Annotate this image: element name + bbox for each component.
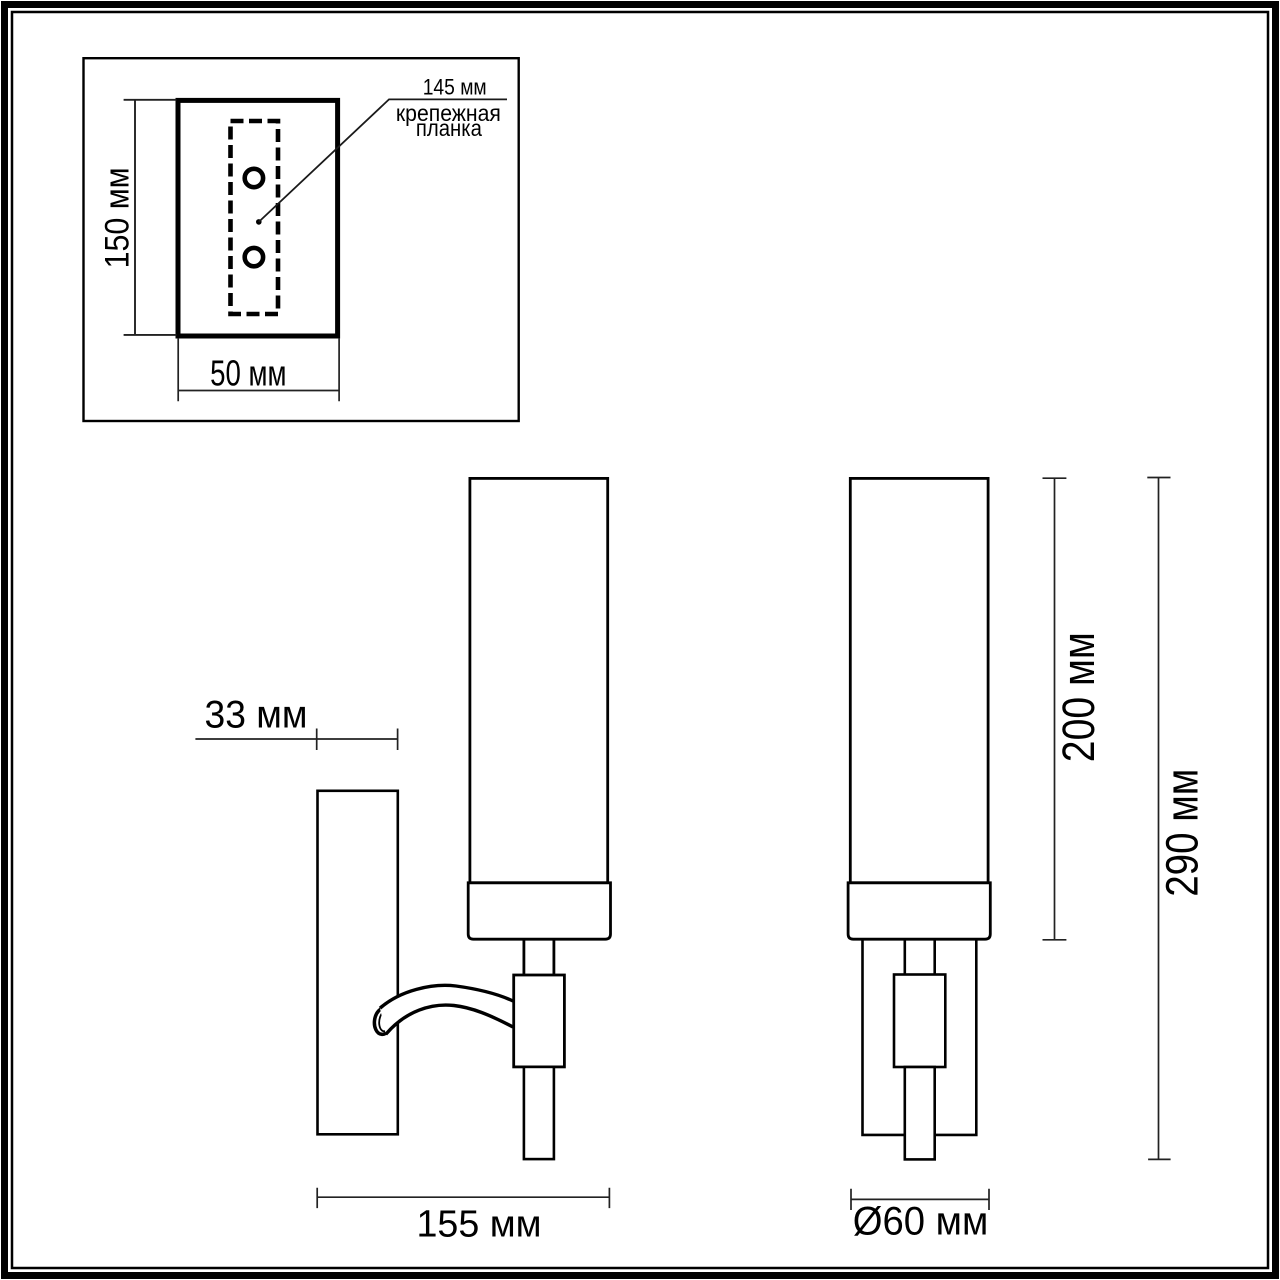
svg-text:150 мм: 150 мм — [99, 167, 137, 268]
svg-text:50 мм: 50 мм — [210, 353, 286, 394]
svg-text:290 мм: 290 мм — [1157, 769, 1208, 897]
svg-text:33 мм: 33 мм — [205, 694, 308, 737]
svg-text:155 мм: 155 мм — [417, 1204, 542, 1246]
svg-text:Ø60 мм: Ø60 мм — [853, 1200, 989, 1244]
svg-text:200 мм: 200 мм — [1053, 632, 1104, 762]
svg-text:145 мм: 145 мм — [423, 75, 487, 100]
svg-text:планка: планка — [416, 115, 482, 141]
